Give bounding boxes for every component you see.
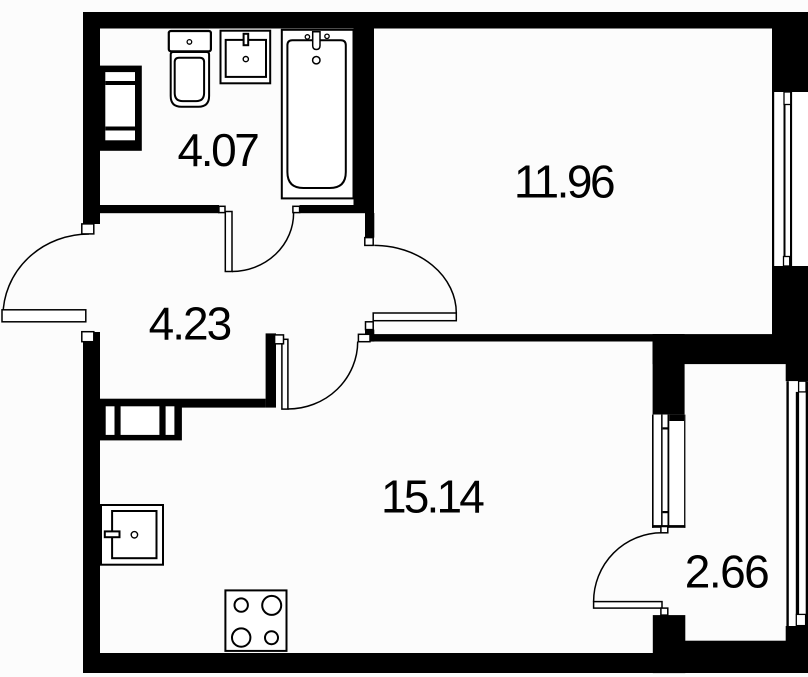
svg-text:11.96: 11.96 <box>514 156 614 208</box>
svg-text:4.23: 4.23 <box>149 297 231 349</box>
svg-text:2.66: 2.66 <box>685 546 769 598</box>
svg-text:15.14: 15.14 <box>381 471 484 523</box>
svg-text:4.07: 4.07 <box>178 124 259 176</box>
